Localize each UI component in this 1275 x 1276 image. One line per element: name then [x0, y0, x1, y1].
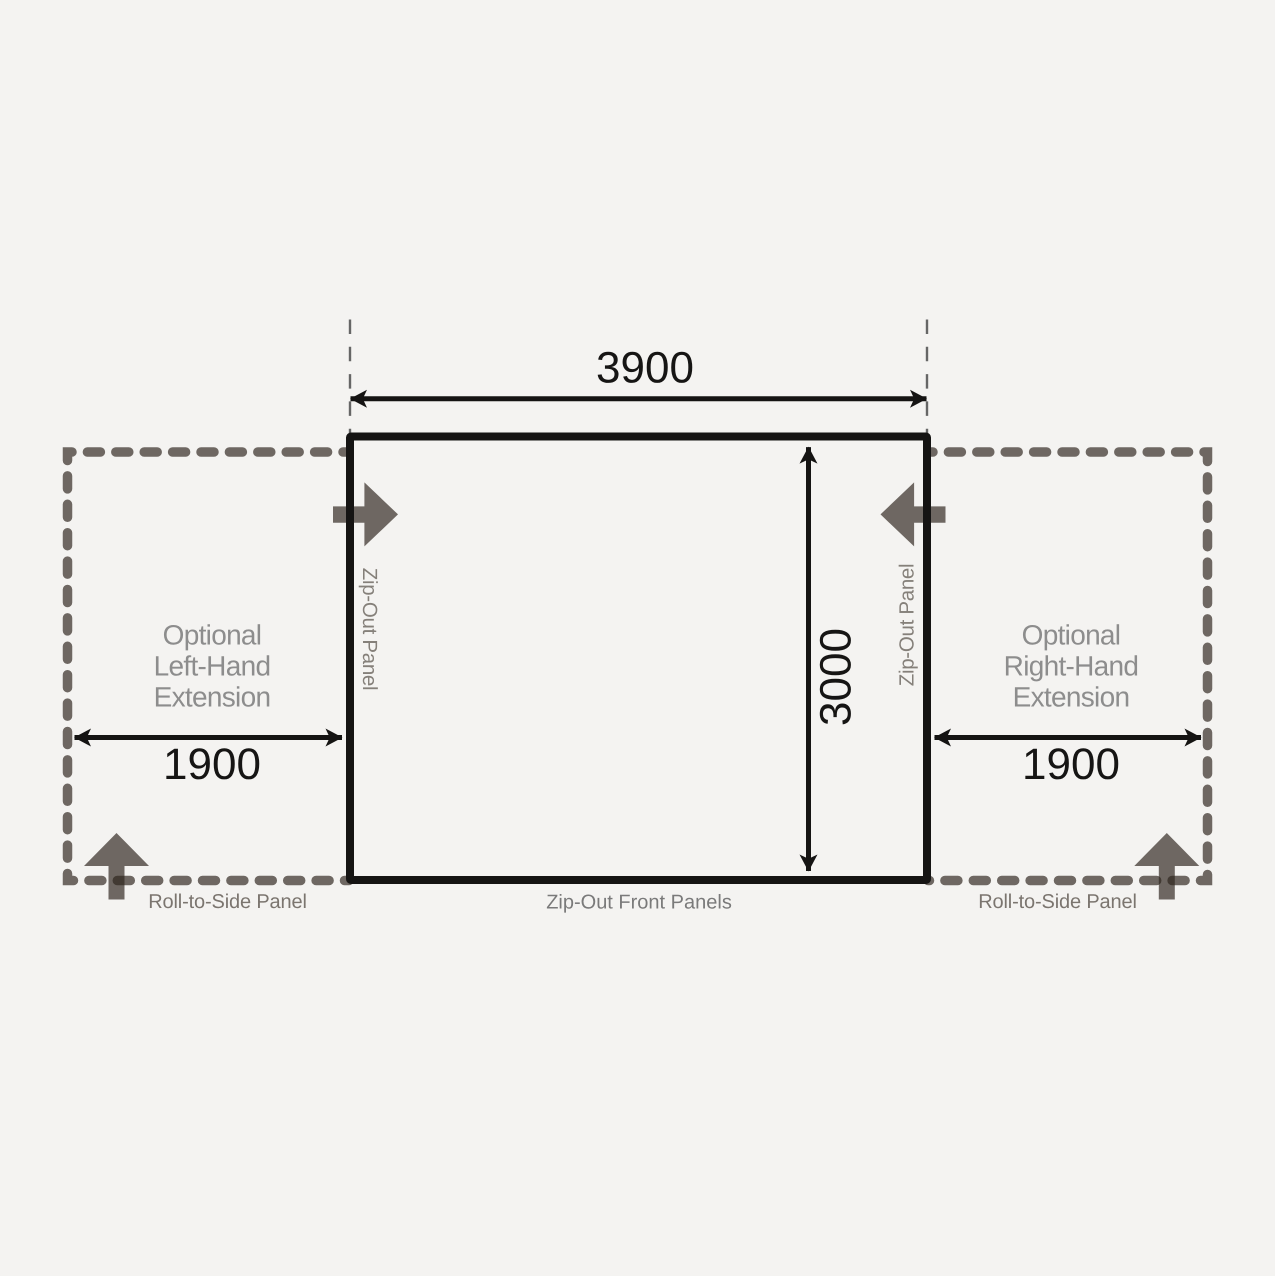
svg-text:Roll-to-Side Panel: Roll-to-Side Panel [978, 891, 1137, 913]
svg-text:Optional: Optional [1022, 620, 1121, 651]
svg-text:Extension: Extension [1013, 682, 1130, 713]
svg-text:Zip-Out Front Panels: Zip-Out Front Panels [546, 892, 732, 914]
svg-text:3900: 3900 [596, 344, 694, 393]
svg-text:1900: 1900 [163, 740, 261, 789]
svg-text:Right-Hand: Right-Hand [1004, 651, 1139, 682]
svg-text:Zip-Out Panel: Zip-Out Panel [896, 564, 919, 687]
svg-text:Zip-Out Panel: Zip-Out Panel [358, 568, 381, 691]
svg-text:Optional: Optional [163, 620, 262, 651]
svg-text:Extension: Extension [154, 682, 271, 713]
svg-text:1900: 1900 [1022, 740, 1120, 789]
svg-text:3000: 3000 [812, 628, 861, 726]
svg-text:Left-Hand: Left-Hand [154, 651, 271, 682]
svg-text:Roll-to-Side Panel: Roll-to-Side Panel [148, 891, 307, 913]
